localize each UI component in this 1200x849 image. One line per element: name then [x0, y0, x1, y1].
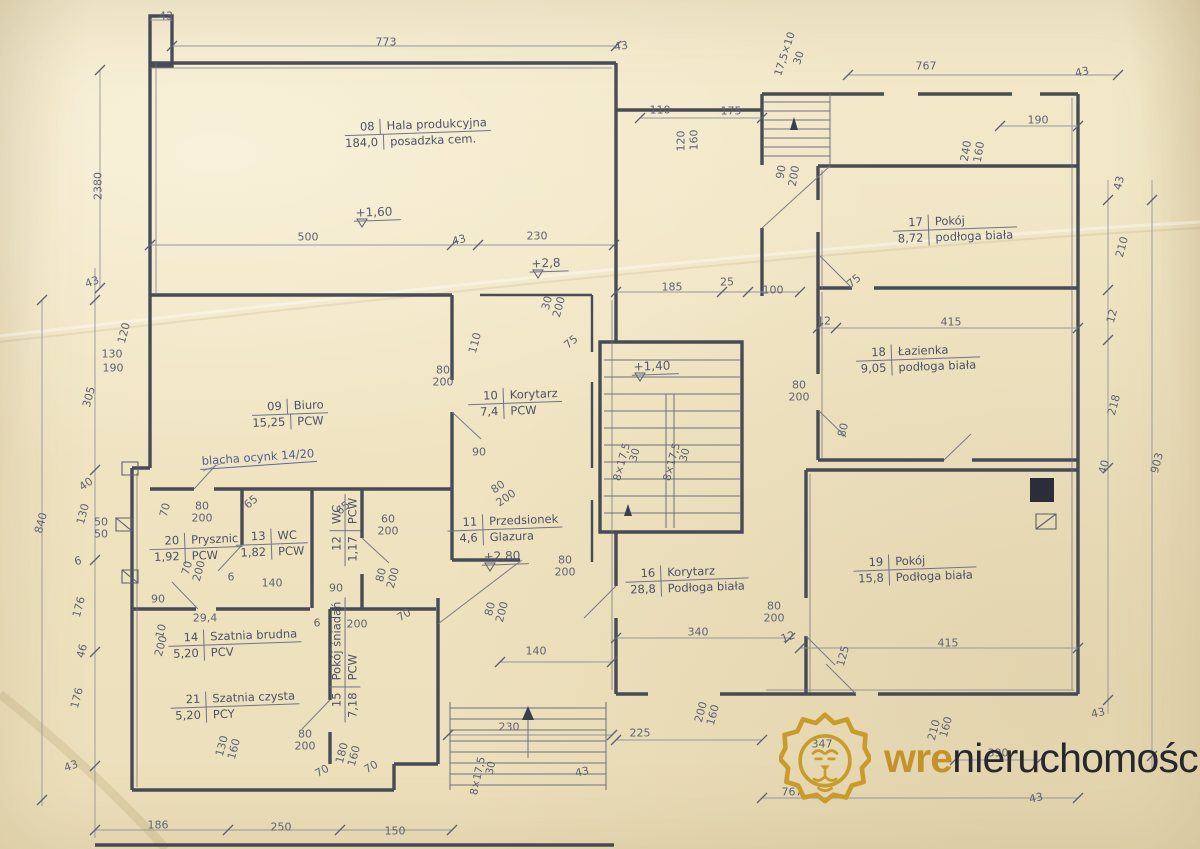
fixtures: [116, 462, 1056, 583]
door-swings: [172, 166, 971, 729]
stove-symbol: [1030, 478, 1054, 502]
watermark: wrenieruchomości: [779, 712, 1200, 804]
blueprint-paper: 4377343767431101751901201609020024016023…: [0, 0, 1200, 849]
brand-wordmark: wrenieruchomości: [884, 738, 1200, 779]
wall-inner-lines: [137, 63, 1074, 787]
lion-icon: [779, 712, 871, 804]
lion-nose: [820, 765, 829, 771]
stair-arrows: [522, 117, 798, 720]
brand-wre: wre: [884, 735, 952, 781]
stair-steps: [450, 94, 830, 790]
brand-nieruchomosci: nieruchomości: [952, 735, 1200, 781]
